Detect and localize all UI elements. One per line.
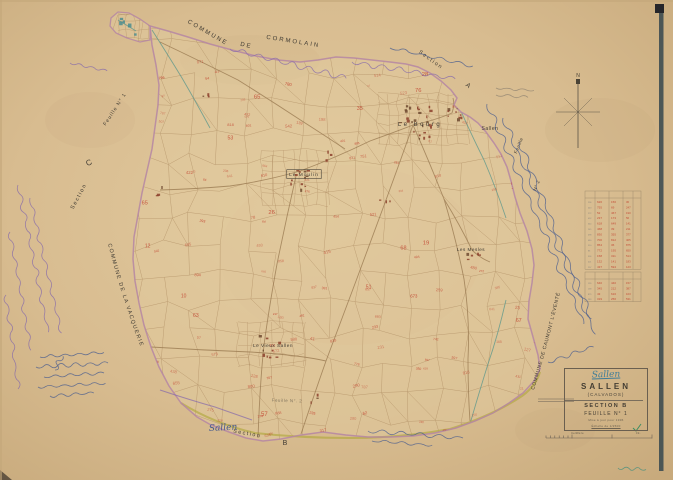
place-le-moulin: Le Moulin xyxy=(289,172,319,178)
svg-text:69: 69 xyxy=(611,205,615,209)
svg-text:437: 437 xyxy=(597,265,602,269)
svg-text:618: 618 xyxy=(597,222,602,226)
svg-text:830: 830 xyxy=(597,232,602,236)
svg-text:454: 454 xyxy=(333,215,339,219)
svg-text:875: 875 xyxy=(626,243,631,247)
watercolor-parcel-mark xyxy=(119,22,123,26)
sallen-handwritten-south: Sallen xyxy=(209,423,238,434)
svg-text:655: 655 xyxy=(172,380,180,386)
svg-text:742: 742 xyxy=(433,337,439,341)
svg-text:521: 521 xyxy=(370,212,377,217)
title-footer: Certifié le 19.. xyxy=(565,432,647,436)
svg-text:141: 141 xyxy=(626,222,631,226)
svg-text:514: 514 xyxy=(626,254,631,258)
svg-text:141: 141 xyxy=(611,259,616,263)
svg-text:467: 467 xyxy=(611,211,616,215)
svg-text:575: 575 xyxy=(244,115,249,119)
svg-text:156: 156 xyxy=(611,200,616,204)
svg-text:329: 329 xyxy=(217,419,223,423)
feuille-south: Feuille N°. 2 xyxy=(272,397,303,403)
place-les-mesles: Les Mesles xyxy=(457,247,485,252)
title-footer-right: 19.. xyxy=(636,432,641,436)
svg-text:355: 355 xyxy=(611,232,616,236)
svg-text:700: 700 xyxy=(597,238,602,242)
title-department: (CALVADOS) xyxy=(565,392,647,398)
svg-text:693: 693 xyxy=(374,314,381,319)
svg-text:157: 157 xyxy=(626,281,631,285)
svg-text:198: 198 xyxy=(319,117,327,122)
svg-text:626: 626 xyxy=(597,200,602,204)
svg-text:531: 531 xyxy=(626,297,631,301)
svg-text:594: 594 xyxy=(611,265,616,269)
svg-text:67: 67 xyxy=(516,318,522,324)
svg-text:377: 377 xyxy=(626,232,631,236)
svg-text:36: 36 xyxy=(611,243,615,247)
svg-text:818: 818 xyxy=(227,122,234,127)
svg-text:183: 183 xyxy=(626,259,631,263)
svg-text:580: 580 xyxy=(290,336,298,342)
svg-text:523: 523 xyxy=(400,90,408,96)
svg-text:597: 597 xyxy=(425,358,430,362)
svg-text:468: 468 xyxy=(597,227,602,231)
scan-corner-mark xyxy=(655,4,664,13)
svg-text:649: 649 xyxy=(611,222,616,226)
scan-edge-top xyxy=(0,0,673,2)
section-b-letter: B xyxy=(283,440,288,447)
cadastral-map-page: 2172794725029789357076102358856934324225… xyxy=(0,0,673,480)
svg-text:43: 43 xyxy=(597,292,601,296)
svg-text:211: 211 xyxy=(626,227,631,231)
svg-text:26: 26 xyxy=(268,210,275,216)
svg-text:117: 117 xyxy=(214,70,220,74)
svg-text:772: 772 xyxy=(597,249,602,253)
svg-text:673: 673 xyxy=(410,294,418,299)
svg-text:190: 190 xyxy=(626,211,631,215)
svg-text:10: 10 xyxy=(181,293,187,299)
compass-north-flag xyxy=(576,79,580,84)
svg-text:871: 871 xyxy=(196,59,204,65)
svg-text:139: 139 xyxy=(296,120,303,126)
svg-text:616: 616 xyxy=(611,292,616,296)
svg-text:476: 476 xyxy=(304,189,310,194)
svg-text:480: 480 xyxy=(268,431,274,436)
svg-text:311: 311 xyxy=(611,254,616,258)
place-le-bourg: Le Bourg xyxy=(398,122,442,128)
svg-text:165: 165 xyxy=(496,340,502,344)
svg-text:195: 195 xyxy=(611,249,616,253)
svg-text:641: 641 xyxy=(489,307,495,311)
svg-text:52: 52 xyxy=(597,211,601,215)
svg-text:650: 650 xyxy=(626,249,631,253)
watercolor-parcel-mark xyxy=(134,33,136,35)
svg-text:514: 514 xyxy=(374,72,382,78)
svg-text:440: 440 xyxy=(611,281,616,285)
watercolor-parcel-mark xyxy=(128,24,131,28)
svg-text:56: 56 xyxy=(626,216,630,220)
title-handwritten-name: Sallen xyxy=(565,369,647,383)
svg-text:212: 212 xyxy=(611,286,616,290)
watercolor-parcel-mark xyxy=(120,18,123,20)
svg-text:888: 888 xyxy=(275,411,282,416)
svg-text:854: 854 xyxy=(597,243,602,247)
svg-text:68: 68 xyxy=(400,245,406,251)
title-footer-left: Certifié le xyxy=(571,432,584,436)
svg-text:894: 894 xyxy=(194,273,200,277)
svg-text:494: 494 xyxy=(414,255,420,260)
svg-text:132: 132 xyxy=(597,259,602,263)
title-note-1: Mise à jour pour 1936 xyxy=(565,419,647,423)
svg-text:256: 256 xyxy=(611,297,616,301)
compass-north-label: N xyxy=(576,73,580,79)
svg-text:755: 755 xyxy=(597,205,602,209)
title-divider xyxy=(565,400,643,401)
svg-text:787: 787 xyxy=(361,384,369,389)
svg-text:304: 304 xyxy=(398,189,404,194)
svg-text:54: 54 xyxy=(205,76,210,81)
svg-text:19: 19 xyxy=(423,241,430,247)
svg-text:387: 387 xyxy=(626,286,631,290)
svg-text:542: 542 xyxy=(285,123,293,128)
svg-text:319: 319 xyxy=(597,297,602,301)
title-block: Sallen SALLEN (CALVADOS) SECTION B FEUIL… xyxy=(564,368,648,431)
svg-text:53: 53 xyxy=(228,136,234,142)
title-note-2: Échelle de 1/2500 xyxy=(565,425,647,429)
svg-text:21: 21 xyxy=(520,386,524,390)
svg-text:275: 275 xyxy=(207,407,214,413)
svg-text:39: 39 xyxy=(611,227,615,231)
svg-text:431: 431 xyxy=(304,177,310,181)
svg-text:259: 259 xyxy=(436,287,444,292)
svg-text:57: 57 xyxy=(261,412,268,418)
svg-text:419: 419 xyxy=(423,366,428,370)
svg-text:76: 76 xyxy=(415,88,421,94)
svg-text:247: 247 xyxy=(626,205,631,209)
svg-text:800: 800 xyxy=(247,383,255,389)
svg-text:237: 237 xyxy=(597,216,602,220)
svg-text:493: 493 xyxy=(256,242,263,248)
svg-text:173: 173 xyxy=(611,216,616,220)
scan-edge-strip xyxy=(659,6,664,471)
place-le-vieux-sallen: Le Vieux Sallen xyxy=(253,343,293,348)
svg-text:858: 858 xyxy=(278,259,284,263)
svg-text:158: 158 xyxy=(597,254,602,258)
svg-text:812: 812 xyxy=(611,238,616,242)
svg-text:51: 51 xyxy=(366,285,372,291)
title-commune-name: SALLEN xyxy=(565,382,647,392)
svg-text:57: 57 xyxy=(197,335,202,340)
svg-text:391: 391 xyxy=(322,286,328,290)
svg-text:405: 405 xyxy=(626,238,631,242)
svg-text:601: 601 xyxy=(246,123,252,128)
paper-stain xyxy=(545,98,655,162)
svg-text:123: 123 xyxy=(626,265,631,269)
svg-text:65: 65 xyxy=(254,94,261,100)
svg-text:12: 12 xyxy=(145,244,151,250)
svg-text:65: 65 xyxy=(142,200,148,206)
title-section-line: SECTION B xyxy=(565,403,647,410)
scan-edge-left xyxy=(0,0,2,480)
svg-text:35: 35 xyxy=(357,106,363,112)
svg-text:63: 63 xyxy=(193,313,199,319)
svg-text:30: 30 xyxy=(626,200,630,204)
svg-text:199: 199 xyxy=(491,187,497,192)
svg-text:103: 103 xyxy=(626,292,631,296)
svg-text:641: 641 xyxy=(226,174,233,179)
svg-text:345: 345 xyxy=(597,286,602,290)
title-sheet-line: FEUILLE N° 1 xyxy=(565,411,647,417)
watercolor-parcel-mark xyxy=(123,20,125,23)
svg-text:272: 272 xyxy=(479,269,484,273)
svg-text:280: 280 xyxy=(350,416,357,421)
svg-text:640: 640 xyxy=(597,281,602,285)
svg-text:236: 236 xyxy=(223,169,229,174)
